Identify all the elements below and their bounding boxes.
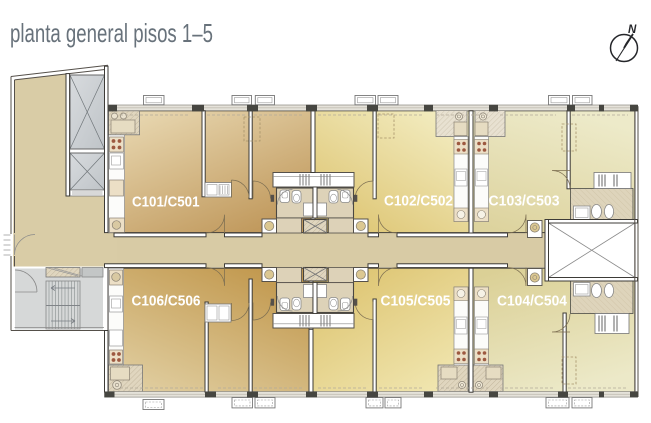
svg-text:C102/C502: C102/C502 bbox=[384, 194, 453, 210]
svg-text:C103/C503: C103/C503 bbox=[489, 194, 560, 210]
svg-text:C106/C506: C106/C506 bbox=[132, 294, 201, 310]
svg-text:planta general pisos 1–5: planta general pisos 1–5 bbox=[10, 18, 213, 48]
svg-text:C104/C504: C104/C504 bbox=[497, 294, 567, 310]
svg-text:N: N bbox=[628, 24, 637, 36]
svg-text:C101/C501: C101/C501 bbox=[132, 195, 200, 211]
svg-text:C105/C505: C105/C505 bbox=[381, 294, 451, 310]
